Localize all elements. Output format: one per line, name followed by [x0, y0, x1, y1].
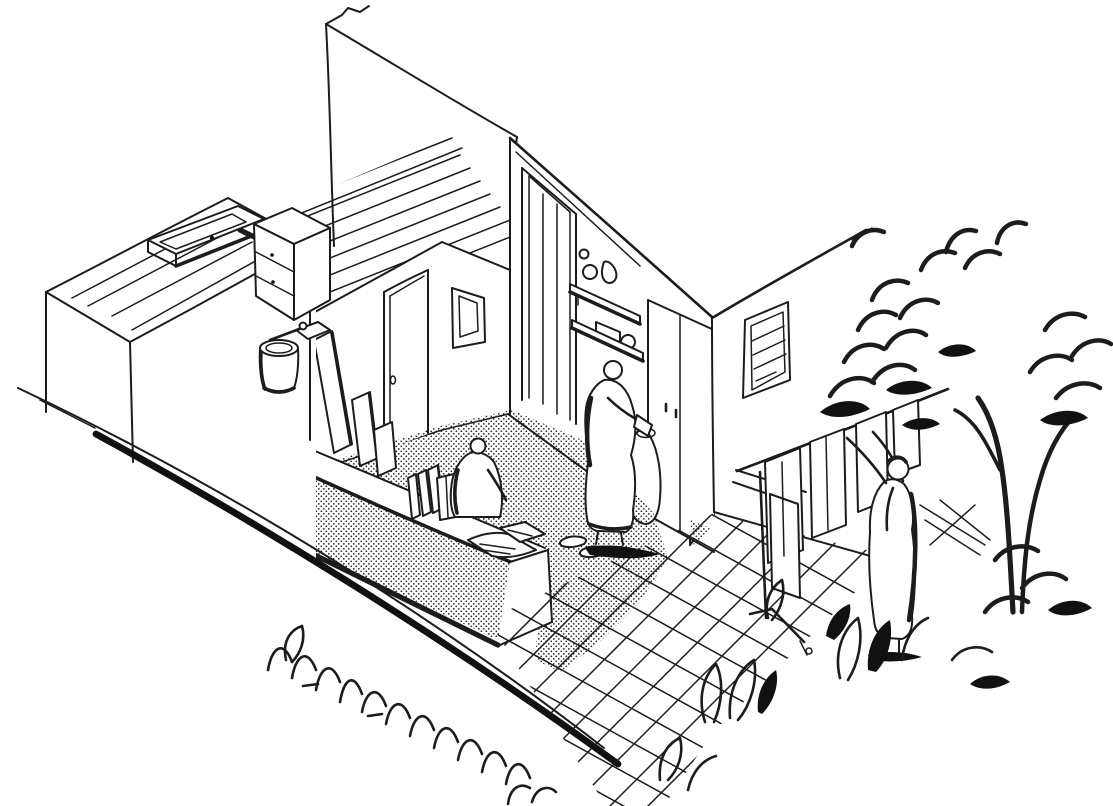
picture-frame: [452, 288, 485, 348]
illustration-canvas: [0, 0, 1113, 806]
house-sketch: [0, 0, 1113, 806]
